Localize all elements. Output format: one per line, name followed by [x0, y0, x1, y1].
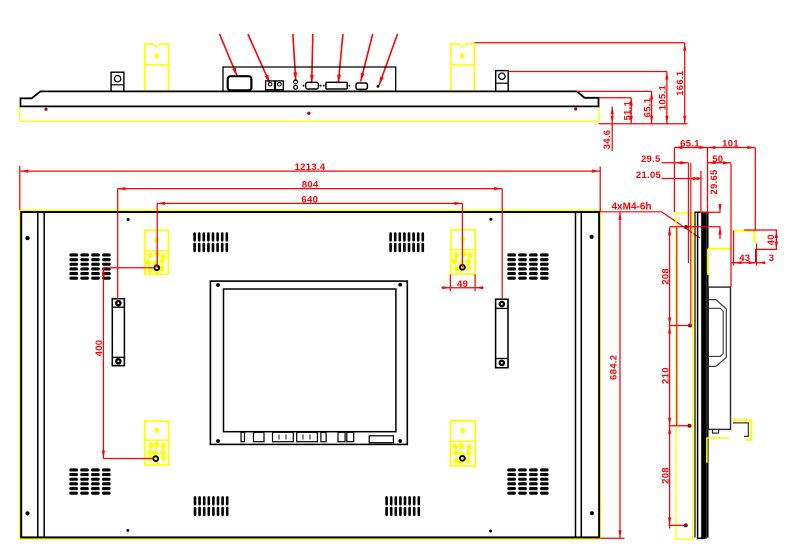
svg-text:40: 40 [766, 234, 777, 245]
svg-text:29.5: 29.5 [641, 154, 661, 165]
svg-text:105.1: 105.1 [657, 85, 668, 111]
svg-text:208: 208 [660, 467, 671, 484]
svg-text:804: 804 [302, 180, 319, 191]
svg-text:3: 3 [769, 253, 775, 264]
svg-text:65.1: 65.1 [642, 97, 653, 117]
svg-text:400: 400 [94, 340, 105, 357]
svg-text:51.1: 51.1 [622, 100, 633, 120]
svg-text:34.6: 34.6 [602, 130, 613, 150]
svg-text:166.1: 166.1 [675, 70, 686, 96]
svg-text:4xM4-6h: 4xM4-6h [612, 202, 652, 213]
svg-text:208: 208 [660, 268, 671, 285]
svg-text:640: 640 [301, 194, 318, 205]
svg-text:65.1: 65.1 [680, 139, 700, 150]
svg-text:210: 210 [660, 367, 671, 384]
svg-text:43: 43 [739, 253, 750, 264]
svg-text:29.65: 29.65 [709, 169, 720, 195]
svg-text:101: 101 [722, 139, 739, 150]
svg-text:684.2: 684.2 [608, 355, 619, 380]
svg-text:1213.4: 1213.4 [295, 162, 326, 173]
svg-text:50: 50 [712, 154, 723, 165]
svg-text:21.05: 21.05 [636, 170, 662, 181]
svg-text:49: 49 [457, 279, 468, 290]
